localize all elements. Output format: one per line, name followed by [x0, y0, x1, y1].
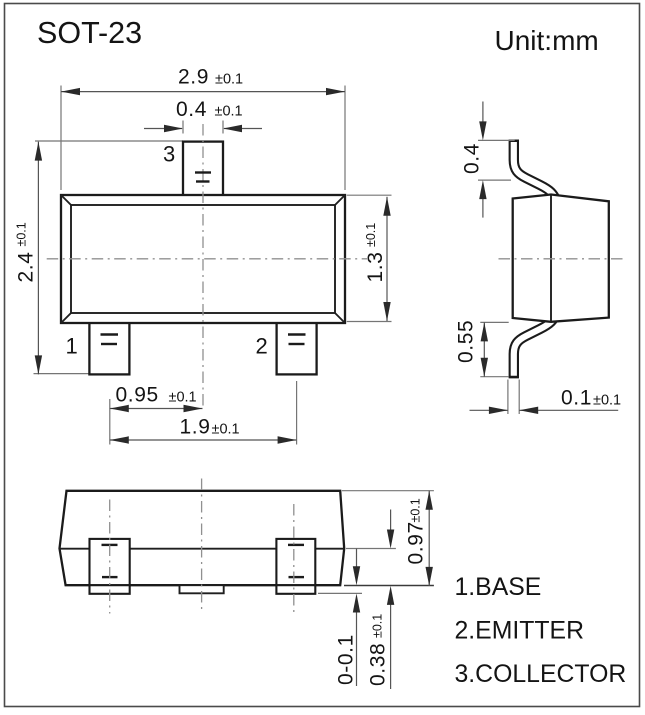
svg-text:±0.1: ±0.1	[593, 393, 621, 409]
svg-text:0.4: 0.4	[176, 98, 207, 121]
svg-text:±0.1: ±0.1	[212, 422, 240, 438]
svg-text:0.97: 0.97	[405, 521, 428, 564]
svg-text:2: 2	[256, 334, 268, 359]
svg-text:±0.1: ±0.1	[215, 103, 243, 119]
svg-text:0.55: 0.55	[455, 320, 478, 363]
svg-text:±0.1: ±0.1	[15, 222, 29, 246]
svg-text:1: 1	[66, 334, 78, 359]
svg-text:1.BASE: 1.BASE	[455, 574, 542, 601]
svg-text:SOT-23: SOT-23	[37, 16, 142, 50]
svg-text:±0.1: ±0.1	[364, 223, 378, 247]
svg-text:1.9: 1.9	[180, 416, 211, 439]
svg-text:0.95: 0.95	[116, 384, 159, 407]
svg-text:3: 3	[163, 142, 175, 167]
svg-text:2.9: 2.9	[178, 66, 209, 89]
svg-text:0.1: 0.1	[561, 387, 592, 410]
svg-text:0.38: 0.38	[367, 643, 390, 686]
svg-text:2.EMITTER: 2.EMITTER	[455, 618, 585, 645]
svg-text:±0.1: ±0.1	[215, 71, 243, 87]
svg-text:0.4: 0.4	[461, 143, 484, 174]
svg-text:1.3: 1.3	[364, 252, 387, 283]
svg-text:Unit:mm: Unit:mm	[495, 25, 599, 56]
svg-text:±0.1: ±0.1	[371, 614, 385, 638]
svg-text:±0.1: ±0.1	[169, 390, 197, 406]
svg-text:0-0.1: 0-0.1	[335, 634, 358, 685]
svg-text:3.COLLECTOR: 3.COLLECTOR	[455, 661, 627, 688]
svg-text:2.4: 2.4	[15, 252, 38, 283]
svg-text:±0.1: ±0.1	[409, 498, 423, 522]
